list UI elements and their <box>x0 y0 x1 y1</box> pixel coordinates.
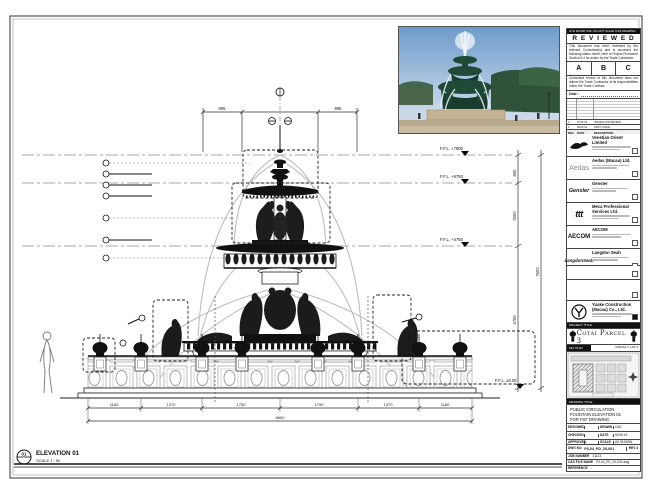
stamp-date-label: Date : <box>569 92 579 96</box>
meca-logo: ttt <box>575 209 583 219</box>
svg-text:1750: 1750 <box>237 402 247 407</box>
job-label: JOB NUMBER <box>567 455 589 459</box>
svg-text:SCALE 1 : 50: SCALE 1 : 50 <box>36 458 61 463</box>
consultant-name: Meca Professional Services Ltd. <box>592 205 638 214</box>
contractor-name: Yuake Construction (Macau) Co., Ltd. <box>592 303 638 312</box>
project-title: Cotai Parcel 3 <box>577 329 631 345</box>
stamp-title: R E V I E W E D <box>567 34 640 44</box>
rev-row-rev: 2 <box>567 121 577 124</box>
consultant-checkbox[interactable] <box>632 240 638 246</box>
key-plan-map <box>567 352 640 398</box>
venetian-eagle-logo <box>567 134 591 156</box>
svg-text:ELEVATION 01: ELEVATION 01 <box>36 450 80 457</box>
signoff-checkbox[interactable] <box>632 292 638 298</box>
svg-text:7600: 7600 <box>535 267 540 277</box>
scale-figure <box>40 332 54 393</box>
svg-text:895: 895 <box>219 106 227 111</box>
consultant-name: Gensler <box>592 182 638 187</box>
svg-text:850: 850 <box>512 169 517 177</box>
cad-value: P3-04_PD_20-001.dwg <box>593 461 629 465</box>
svg-text:F.F.L. +7600: F.F.L. +7600 <box>440 146 464 151</box>
svg-text:F.F.L. +4750: F.F.L. +4750 <box>440 237 464 242</box>
consultant-name: Aedas (Macau) Ltd. <box>592 159 638 164</box>
drawn-value: CAD <box>613 426 640 430</box>
svg-text:4750: 4750 <box>512 315 517 325</box>
review-stamp: IF IN DOUBT ASK. DO NOT SCALE THIS DRAWI… <box>566 28 641 134</box>
consultant-list: Venetian Orient Limited Aedas Aedas (Mac… <box>566 134 641 266</box>
drawing-title-line3: FOR FSF DRAWING <box>570 417 637 422</box>
checked-value: - <box>584 434 598 438</box>
rev-row-date: 28.05.15 <box>577 126 594 129</box>
designed-label: DESIGNED <box>567 426 584 430</box>
consultant-meca: ttt Meca Professional Services Ltd. <box>567 203 640 226</box>
designed-value: - <box>584 426 598 430</box>
checked-label: CHECKED <box>567 434 584 438</box>
stamp-grade-b[interactable]: B <box>592 62 617 75</box>
empty-signoff-box <box>566 280 641 301</box>
consultant-name: AECOM <box>592 228 638 233</box>
svg-text:F.F.L. ±0.00: F.F.L. ±0.00 <box>495 378 517 383</box>
svg-text:01: 01 <box>21 452 27 457</box>
key-plan: KEY PLAN PARCEL 3, LOT 3 <box>566 345 641 399</box>
consultant-aedas: Aedas Aedas (Macau) Ltd. <box>567 157 640 180</box>
aedas-logo: Aedas <box>569 165 589 172</box>
svg-text:F.F.L. +6750: F.F.L. +6750 <box>440 174 464 179</box>
stamp-body-2: Consultant review of this document does … <box>567 76 640 90</box>
reference-row: REFERENCE - <box>566 466 641 472</box>
cad-label: CAD FILE NAME <box>567 461 593 465</box>
svg-text:1370: 1370 <box>384 402 394 407</box>
consultant-gensler: Gensler Gensler <box>567 180 640 203</box>
reference-value: - <box>588 467 592 471</box>
svg-text:8600: 8600 <box>276 415 286 420</box>
consultant-venetian: Venetian Orient Limited <box>567 134 640 157</box>
elevation-title: 01 ELEVATION 01 SCALE 1 : 50 <box>14 450 562 467</box>
consultant-checkbox[interactable] <box>632 171 638 177</box>
bottom-dimensions: 1180 1370 1750 1750 1370 1180 8600 <box>86 398 474 424</box>
svg-text:1750: 1750 <box>315 402 325 407</box>
lamp-ornament-icon <box>569 330 577 343</box>
consultant-checkbox[interactable] <box>632 194 638 200</box>
job-value: 31123 <box>589 455 601 459</box>
drawing-title-box: PUBLIC CIRCULATION FOUNTAIN ELEVATION 01… <box>566 405 641 424</box>
reference-label: REFERENCE <box>567 467 588 471</box>
gensler-logo: Gensler <box>569 188 589 194</box>
drawing-sheet: 895 895 <box>0 0 650 488</box>
contractor-box: Yuake Construction (Macau) Co., Ltd. <box>566 301 641 323</box>
stamp-body-1: This document has been reviewed by the r… <box>567 44 640 61</box>
langdon-seah-logo: LangdonSeah <box>564 258 593 263</box>
svg-text:1180: 1180 <box>110 402 119 407</box>
svg-text:2000: 2000 <box>512 211 517 221</box>
stamp-grade-a[interactable]: A <box>567 62 592 75</box>
dwg-value: P3-04_PD_20-001 <box>582 447 625 451</box>
svg-text:895: 895 <box>335 106 343 111</box>
empty-signoff-box <box>566 266 641 280</box>
consultant-aecom: AECOM AECOM <box>567 226 640 249</box>
rev-row-desc: ISSUED FOR REVIEW <box>594 121 640 124</box>
aecom-logo: AECOM <box>568 234 590 240</box>
svg-text:1370: 1370 <box>167 402 177 407</box>
stamp-date-line[interactable] <box>581 93 638 97</box>
contractor-logo <box>567 301 591 322</box>
signoff-checkbox[interactable] <box>632 271 638 277</box>
date-value: 05.06.15 <box>613 434 640 438</box>
key-plan-note: PARCEL 3, LOT 3 <box>591 346 640 349</box>
consultant-checkbox[interactable] <box>632 148 638 154</box>
dwg-no-row: DWG NO. P3-04_PD_20-001 REV 3 <box>566 445 641 454</box>
fountain-photo <box>398 26 560 134</box>
rev-row-desc: FIRST ISSUE <box>594 126 640 129</box>
consultant-name: Langdon Seah <box>592 251 638 256</box>
stamp-rev-grid <box>567 99 640 119</box>
consultant-checkbox[interactable] <box>632 217 638 223</box>
svg-text:1180: 1180 <box>441 402 450 407</box>
rev-row-date: 10.06.15 <box>577 121 594 124</box>
balustrade <box>60 356 500 398</box>
contractor-checkbox[interactable] <box>632 314 638 320</box>
rev-value: REV 3 <box>626 447 640 451</box>
stamp-grade-c[interactable]: C <box>616 62 640 75</box>
key-plan-label: KEY PLAN <box>567 345 591 351</box>
lamp-ornament-icon <box>630 330 638 343</box>
rev-row-rev: 1 <box>567 126 577 129</box>
signature-table: DESIGNED - DRAWN CAD CHECKED - DATE 05.0… <box>566 424 641 445</box>
date-label: DATE <box>598 434 613 438</box>
drawn-label: DRAWN <box>598 426 613 430</box>
fountain-photo-image <box>399 27 559 133</box>
consultant-name: Venetian Orient Limited <box>592 136 638 145</box>
project-title-box: Cotai Parcel 3 <box>566 329 641 345</box>
dwg-label: DWG NO. <box>567 447 582 451</box>
